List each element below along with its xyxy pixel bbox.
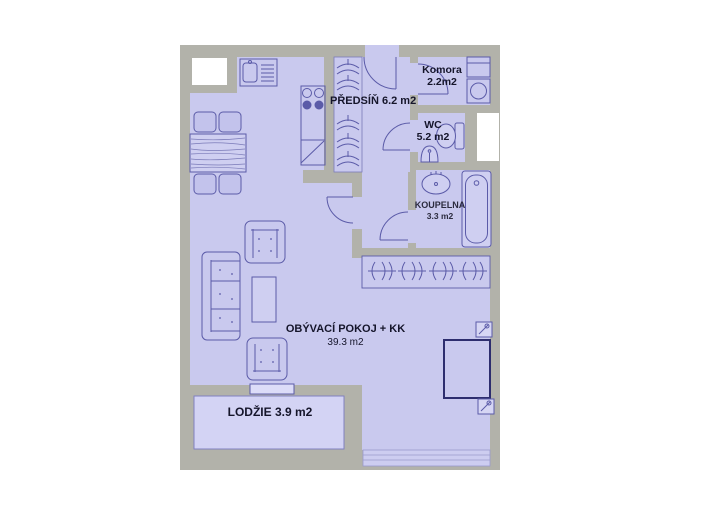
chair [219, 112, 241, 132]
floor-plan-drawing [0, 0, 710, 532]
chair [194, 174, 216, 194]
toilet-bowl [437, 124, 456, 148]
opening-komora [410, 63, 418, 95]
hall-coat-rack [334, 57, 362, 172]
chair [194, 112, 216, 132]
chair [219, 174, 241, 194]
room-hall-lower [362, 172, 408, 248]
hob-burner [315, 101, 323, 109]
washbasin [422, 174, 450, 194]
sofa [202, 252, 240, 340]
armchair-top [245, 221, 285, 263]
bathtub [462, 171, 491, 247]
opening-wc [410, 120, 418, 152]
room-living-kitchen-top [237, 57, 324, 93]
coffee-table [252, 277, 276, 322]
opening-living [352, 197, 362, 229]
bed [444, 340, 490, 398]
window-top-left [192, 58, 227, 85]
floor-plan: PŘEDSÍŇ 6.2 m2 Komora 2.2m2 WC 5.2 m2 KO… [0, 0, 710, 532]
bedroom-window-band [363, 450, 490, 466]
armchair-bottom [247, 338, 287, 380]
toilet-tank [455, 123, 464, 149]
room-komora [418, 57, 490, 105]
window-right-wall [477, 113, 499, 161]
loggia-floor [194, 396, 344, 449]
hob-burner [303, 101, 311, 109]
opening-koupelna [408, 210, 416, 243]
opening-entrance [365, 45, 399, 57]
wardrobe [362, 256, 490, 288]
loggia-window [250, 384, 294, 394]
room-living-mid [324, 183, 352, 385]
room-living-strip [352, 258, 362, 385]
